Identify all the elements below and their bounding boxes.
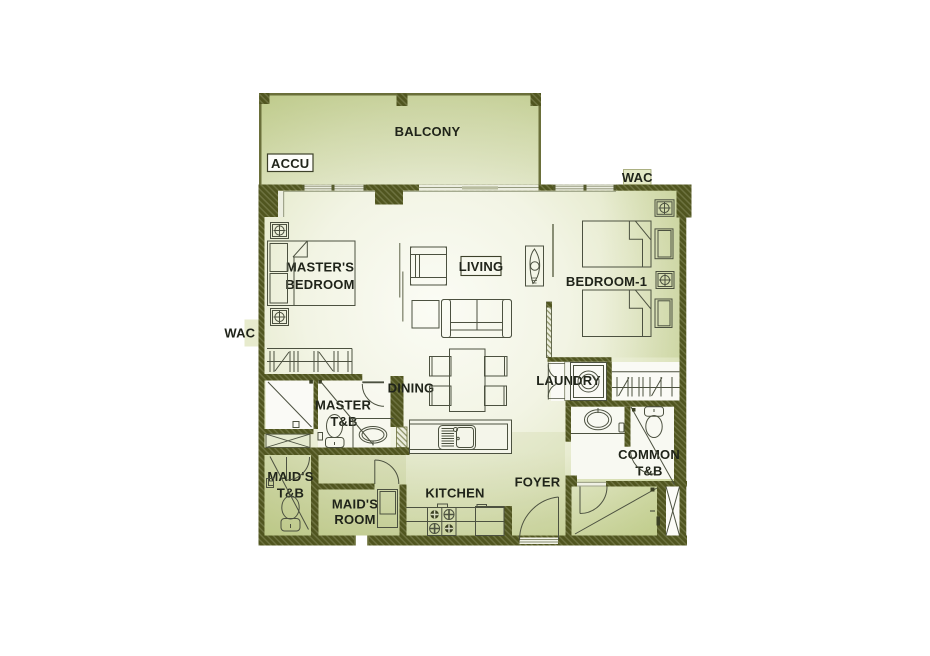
svg-text:BEDROOM-1: BEDROOM-1 bbox=[566, 274, 647, 289]
svg-text:T&B: T&B bbox=[277, 485, 304, 500]
svg-text:LIVING: LIVING bbox=[459, 259, 504, 274]
svg-text:ROOM: ROOM bbox=[334, 512, 375, 527]
svg-text:WAC: WAC bbox=[224, 325, 255, 340]
svg-text:T&B: T&B bbox=[635, 463, 662, 478]
svg-text:MASTER: MASTER bbox=[315, 397, 372, 412]
svg-text:MAID'S: MAID'S bbox=[267, 469, 313, 484]
svg-text:DINING: DINING bbox=[388, 381, 435, 396]
svg-text:BEDROOM: BEDROOM bbox=[285, 277, 354, 292]
svg-text:MASTER'S: MASTER'S bbox=[286, 260, 354, 275]
svg-text:MAID'S: MAID'S bbox=[332, 496, 378, 511]
svg-text:WAC: WAC bbox=[622, 170, 653, 185]
svg-text:COMMON: COMMON bbox=[618, 447, 680, 462]
svg-text:KITCHEN: KITCHEN bbox=[425, 485, 484, 500]
svg-text:ACCU: ACCU bbox=[271, 156, 309, 171]
svg-text:BALCONY: BALCONY bbox=[395, 124, 461, 139]
svg-text:FOYER: FOYER bbox=[515, 474, 561, 489]
